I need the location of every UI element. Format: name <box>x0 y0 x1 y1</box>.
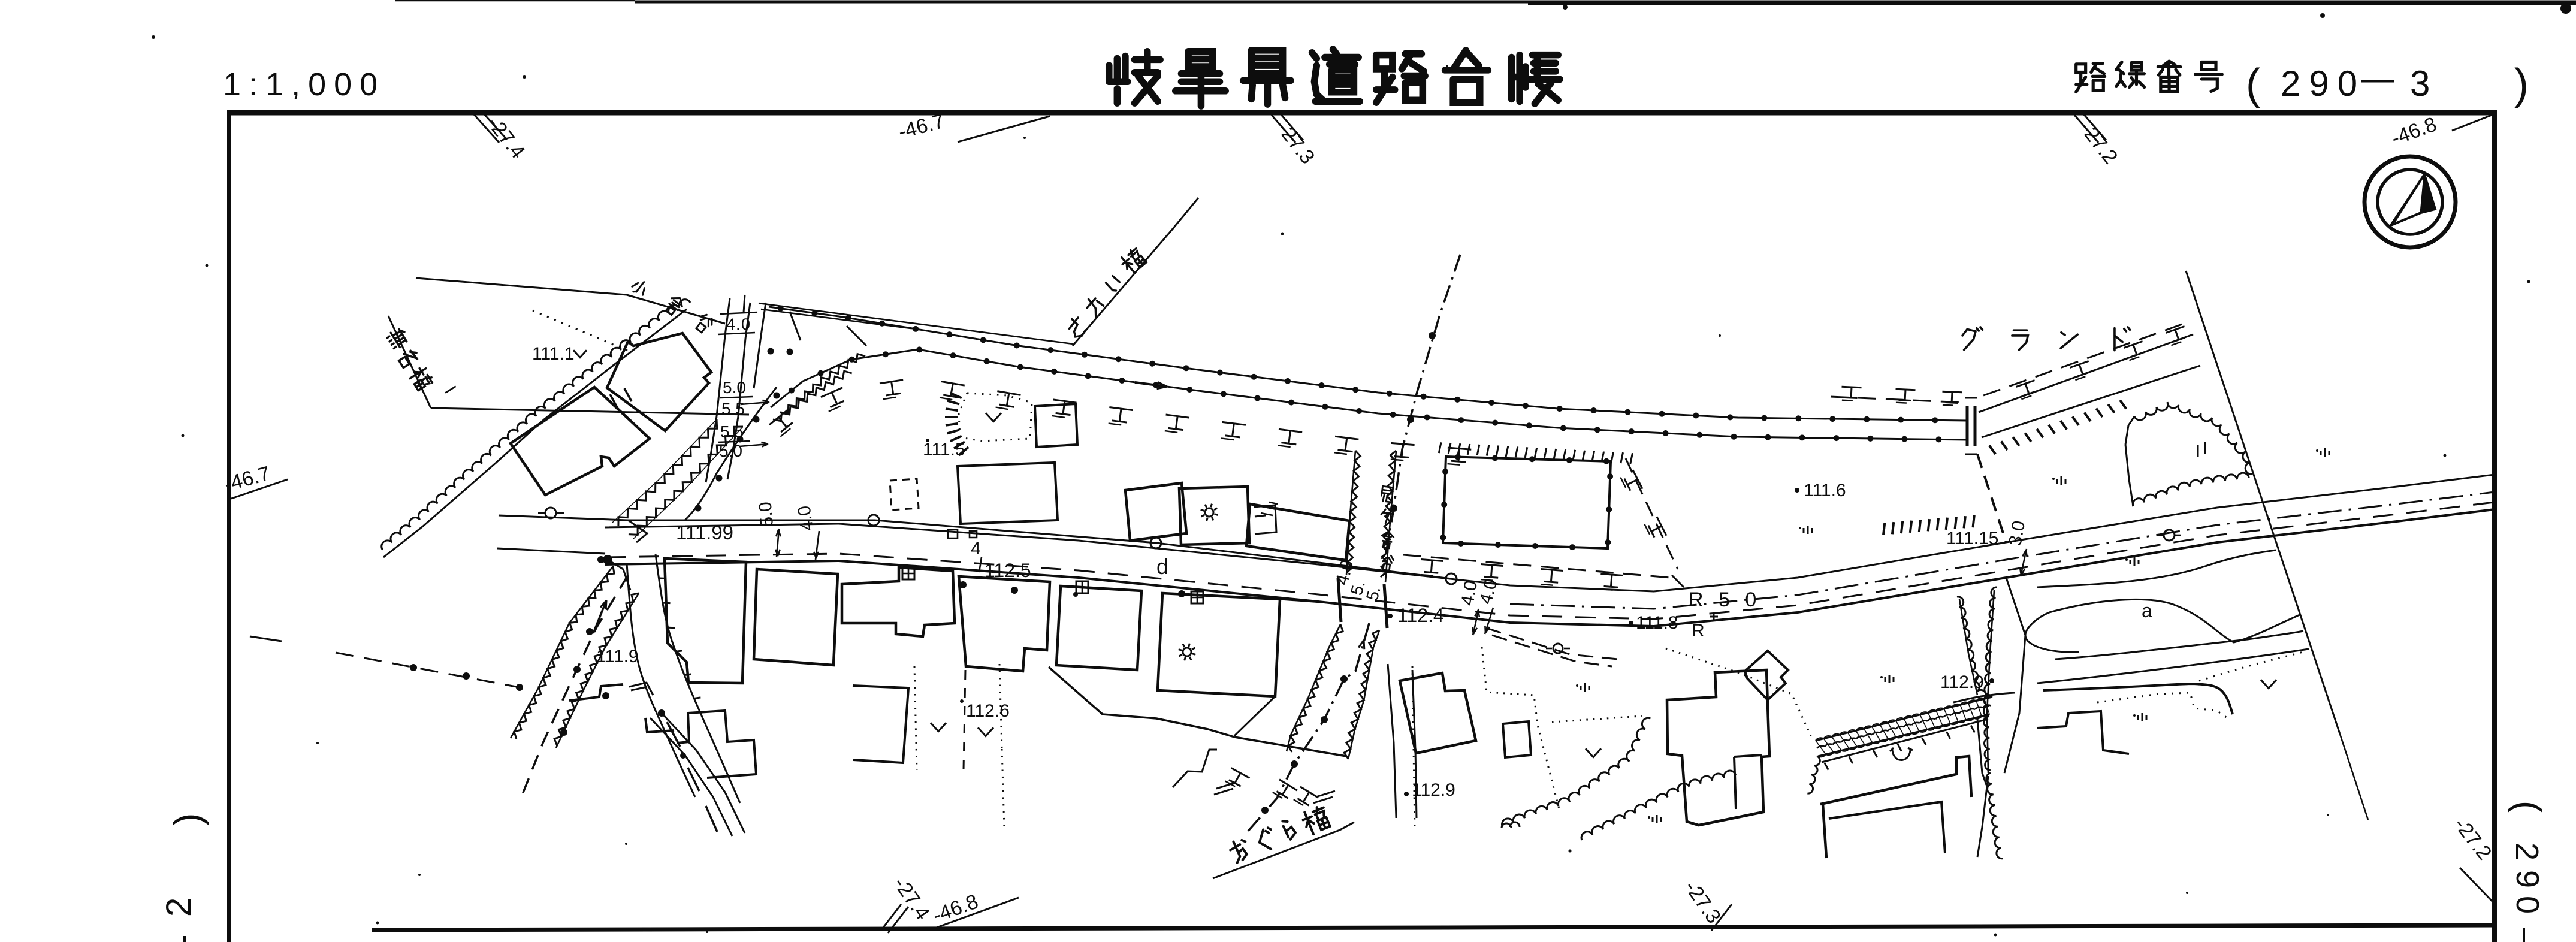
svg-text:3: 3 <box>2410 64 2430 104</box>
svg-text:2: 2 <box>159 898 198 917</box>
svg-text:0: 0 <box>741 315 750 333</box>
svg-text:d: d <box>1156 554 1168 579</box>
svg-text:R: R <box>1692 621 1705 641</box>
svg-text:): ) <box>166 813 209 826</box>
svg-text:): ) <box>2514 61 2529 108</box>
svg-text:a: a <box>2142 600 2152 621</box>
svg-text:4: 4 <box>971 539 981 558</box>
svg-text:(: ( <box>2507 801 2548 813</box>
svg-text:5.5: 5.5 <box>721 400 745 418</box>
svg-text:112.6: 112.6 <box>966 701 1010 721</box>
svg-text:1:1,000: 1:1,000 <box>223 67 385 102</box>
svg-text:(: ( <box>2246 61 2260 108</box>
svg-text:112.4: 112.4 <box>1397 605 1444 626</box>
svg-text:5.0: 5.0 <box>755 501 777 527</box>
svg-text:111.1: 111.1 <box>532 344 575 364</box>
svg-text:112.9: 112.9 <box>1412 780 1455 800</box>
svg-text:111.5: 111.5 <box>923 440 965 460</box>
svg-text:111.6: 111.6 <box>1804 481 1846 500</box>
svg-text:4: 4 <box>726 315 735 333</box>
svg-text:290: 290 <box>2281 64 2366 104</box>
svg-text:—: — <box>2361 59 2394 97</box>
svg-text:9: 9 <box>2509 870 2545 888</box>
svg-text:111.9: 111.9 <box>596 647 639 666</box>
svg-text:111.15: 111.15 <box>1946 529 1998 548</box>
svg-text:4.0: 4.0 <box>794 505 817 532</box>
svg-text:5.0: 5.0 <box>723 378 746 397</box>
svg-text:0: 0 <box>2509 896 2545 914</box>
svg-text:R 5 0: R 5 0 <box>1689 588 1761 611</box>
svg-text:2: 2 <box>2509 843 2545 861</box>
svg-text:.: . <box>736 315 741 333</box>
svg-text:111.8: 111.8 <box>1636 613 1678 633</box>
